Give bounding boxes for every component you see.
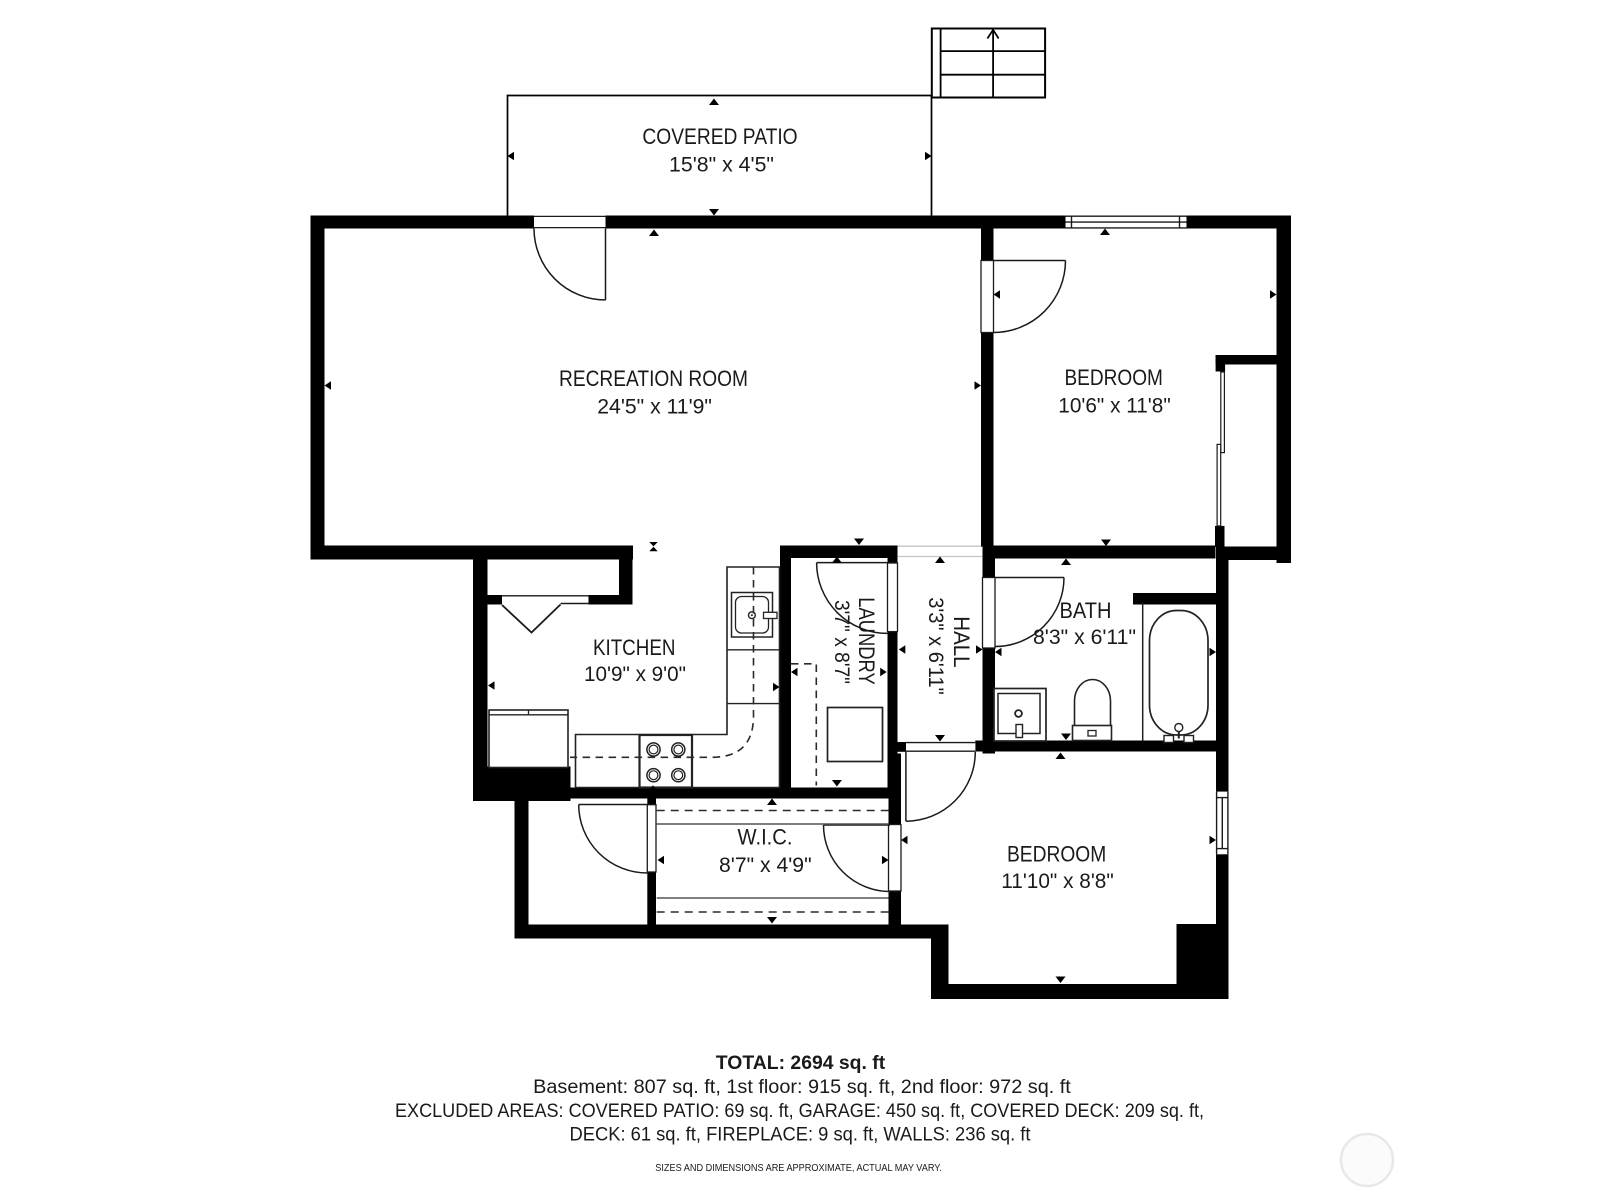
- svg-text:15'8" x 4'5": 15'8" x 4'5": [669, 153, 774, 177]
- svg-text:24'5" x 11'9": 24'5" x 11'9": [597, 395, 712, 419]
- svg-text:SIZES AND DIMENSIONS ARE APPRO: SIZES AND DIMENSIONS ARE APPROXIMATE, AC…: [655, 1162, 942, 1174]
- svg-text:8'7" x 4'9": 8'7" x 4'9": [719, 853, 812, 877]
- svg-text:RECREATION ROOM: RECREATION ROOM: [559, 366, 748, 391]
- svg-text:11'10" x 8'8": 11'10" x 8'8": [1001, 869, 1114, 893]
- svg-text:KITCHEN: KITCHEN: [593, 635, 676, 660]
- svg-text:LAUNDRY: LAUNDRY: [854, 597, 879, 685]
- svg-text:TOTAL: 2694 sq. ft: TOTAL: 2694 sq. ft: [716, 1052, 886, 1074]
- svg-text:COVERED PATIO: COVERED PATIO: [642, 124, 797, 149]
- svg-text:8'3" x 6'11": 8'3" x 6'11": [1033, 625, 1136, 649]
- svg-text:3'7" x 8'7": 3'7" x 8'7": [830, 600, 854, 684]
- svg-text:10'6" x 11'8": 10'6" x 11'8": [1058, 394, 1170, 418]
- svg-text:W.I.C.: W.I.C.: [738, 825, 793, 850]
- svg-text:3'3" x 6'11": 3'3" x 6'11": [924, 597, 948, 695]
- svg-text:BATH: BATH: [1060, 598, 1112, 623]
- svg-text:BEDROOM: BEDROOM: [1064, 365, 1163, 390]
- svg-text:Basement: 807 sq. ft, 1st floo: Basement: 807 sq. ft, 1st floor: 915 sq.…: [533, 1077, 1071, 1098]
- svg-text:EXCLUDED AREAS: COVERED PATIO:: EXCLUDED AREAS: COVERED PATIO: 69 sq. ft…: [395, 1101, 1204, 1122]
- svg-text:BEDROOM: BEDROOM: [1007, 842, 1106, 867]
- svg-text:DECK: 61 sq. ft, FIREPLACE: 9: DECK: 61 sq. ft, FIREPLACE: 9 sq. ft, WA…: [570, 1125, 1032, 1146]
- svg-text:HALL: HALL: [949, 616, 974, 667]
- svg-text:10'9" x 9'0": 10'9" x 9'0": [584, 662, 686, 686]
